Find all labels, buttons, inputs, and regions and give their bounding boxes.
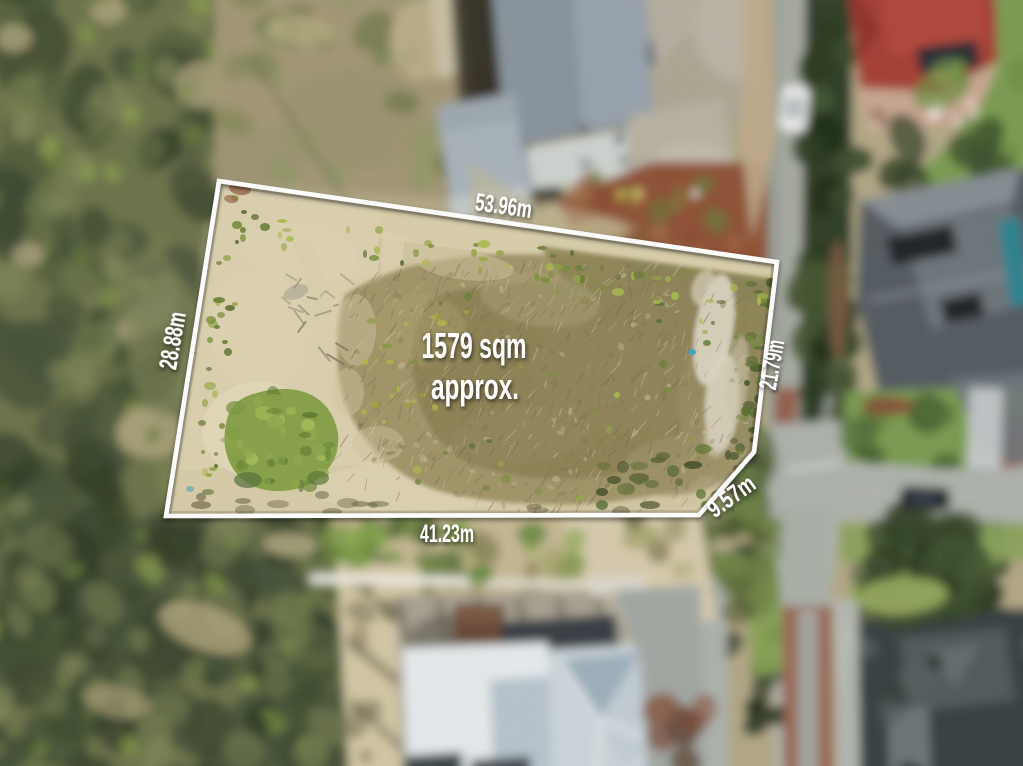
svg-text:41.23m: 41.23m	[420, 520, 474, 548]
svg-text:approx.: approx.	[431, 366, 519, 407]
svg-text:1579 sqm: 1579 sqm	[422, 325, 527, 366]
